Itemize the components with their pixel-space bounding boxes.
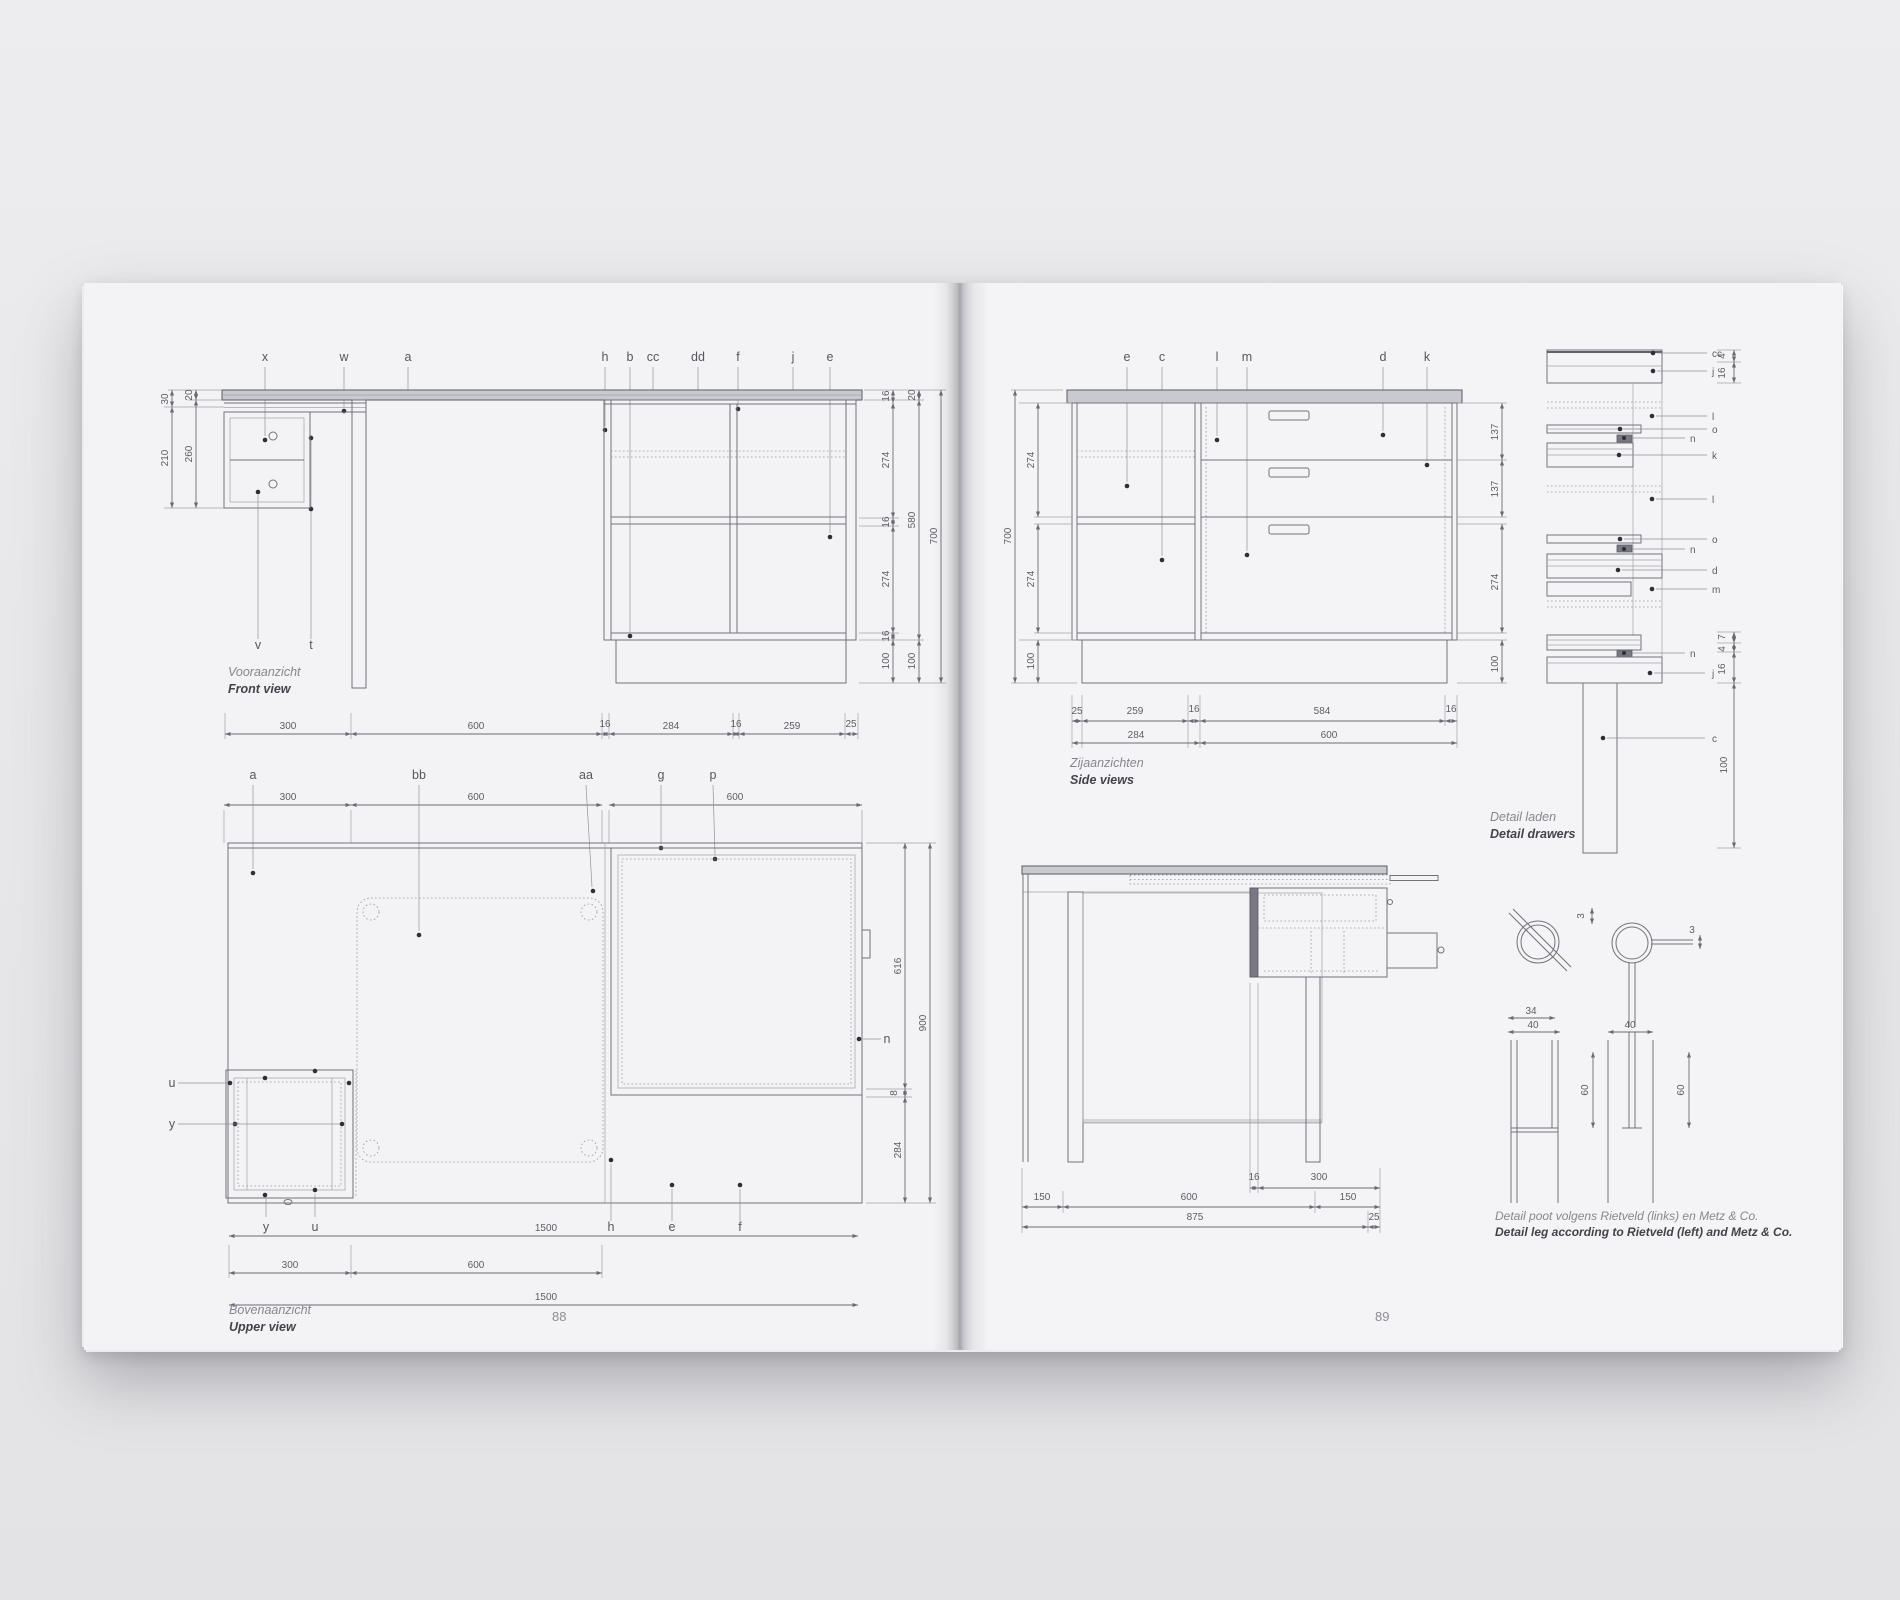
dim-label: 210 <box>160 449 171 466</box>
dim-label: 300 <box>282 1260 299 1271</box>
part-label: x <box>262 350 269 364</box>
leg-detail-caption: Detail poot volgens Rietveld (links) en … <box>1495 1208 1792 1240</box>
part-label: u <box>312 1220 319 1234</box>
dim-label: 300 <box>1311 1172 1328 1183</box>
part-label: f <box>738 1220 742 1234</box>
dim-label: 100 <box>1490 655 1501 672</box>
part-label: n <box>1690 434 1696 445</box>
dim-label: 300 <box>280 721 297 732</box>
dim-label: 20 <box>184 389 195 401</box>
detail-drawers-caption: Detail laden Detail drawers <box>1490 809 1575 843</box>
part-label: g <box>658 768 665 782</box>
part-label: o <box>1712 535 1718 546</box>
dim-label: 600 <box>1181 1192 1198 1203</box>
part-label: l <box>1712 412 1714 423</box>
part-label: f <box>736 350 740 364</box>
dim-label: 40 <box>1624 1020 1636 1031</box>
part-label: j <box>1711 669 1714 680</box>
dim-label: 137 <box>1490 423 1501 440</box>
side-views-caption: Zijaanzichten Side views <box>1070 755 1144 789</box>
dim-label: 600 <box>1321 730 1338 741</box>
dim-label: 284 <box>1128 730 1145 741</box>
part-label: k <box>1424 350 1431 364</box>
dim-label: 25 <box>845 719 857 730</box>
dim-label: 3 <box>1576 913 1587 919</box>
dim-label: 30 <box>160 393 171 405</box>
part-label: e <box>669 1220 676 1234</box>
dim-label: 600 <box>468 792 485 803</box>
dim-label: 150 <box>1034 1192 1051 1203</box>
page-number-left: 88 <box>552 1309 566 1324</box>
dim-label: 274 <box>881 570 892 587</box>
desk-side-view-drawing: 16 300 150 600 150 875 25 <box>1022 866 1444 1233</box>
part-label: a <box>250 768 257 782</box>
dim-label: 584 <box>1314 706 1331 717</box>
dim-label: 100 <box>1719 756 1730 773</box>
part-label: d <box>1712 566 1718 577</box>
book-spread: x w a h b cc dd f j e v t <box>84 283 1841 1350</box>
dim-label: 3 <box>1689 925 1695 936</box>
dim-label: 100 <box>1026 652 1037 669</box>
dim-label: 4 <box>1717 353 1728 359</box>
dim-label: 60 <box>1676 1084 1687 1096</box>
caption-en: Detail leg according to Rietveld (left) … <box>1495 1225 1792 1239</box>
dim-label: 16 <box>730 719 742 730</box>
caption-nl: Zijaanzichten <box>1070 755 1144 772</box>
book-gutter <box>946 283 974 1350</box>
dim-label: 7 <box>1717 634 1728 640</box>
dim-label: 16 <box>1717 367 1728 379</box>
dim-label: 260 <box>184 445 195 462</box>
dim-label: 40 <box>1527 1020 1539 1031</box>
detail-drawers-drawing: cc j l o n k l o n d m n j c 4 16 <box>1547 349 1741 853</box>
part-label: t <box>309 638 313 652</box>
upper-view-caption: Bovenaanzicht Upper view <box>229 1302 311 1336</box>
caption-en: Detail drawers <box>1490 827 1575 841</box>
dim-label: 600 <box>727 792 744 803</box>
part-label: h <box>602 350 609 364</box>
dim-label: 900 <box>918 1014 929 1031</box>
dim-label: 8 <box>889 1090 900 1096</box>
caption-en: Upper view <box>229 1320 296 1334</box>
front-view-caption: Vooraanzicht Front view <box>228 664 301 698</box>
dim-label: 16 <box>599 719 611 730</box>
dim-label: 16 <box>1188 704 1200 715</box>
part-label: c <box>1159 350 1165 364</box>
dim-label: 600 <box>468 1260 485 1271</box>
leg-detail-drawing: 3 3 34 40 60 40 <box>1508 908 1700 1203</box>
part-label: m <box>1242 350 1252 364</box>
part-label: aa <box>579 768 593 782</box>
dim-label: 137 <box>1490 480 1501 497</box>
part-label: p <box>710 768 717 782</box>
dim-label: 100 <box>881 652 892 669</box>
dim-label: 16 <box>881 630 892 642</box>
part-label: a <box>405 350 412 364</box>
dim-label: 25 <box>1368 1212 1380 1223</box>
part-label: n <box>1690 545 1696 556</box>
part-label: dd <box>691 350 705 364</box>
dim-label: 100 <box>907 652 918 669</box>
page-right: e c l m d k <box>959 283 1841 1350</box>
dim-label: 34 <box>1525 1006 1537 1017</box>
part-label: e <box>827 350 834 364</box>
part-label: k <box>1712 451 1718 462</box>
dim-label: 274 <box>1026 451 1037 468</box>
side-views-drawing: e c l m d k <box>1003 350 1507 748</box>
part-label: y <box>169 1117 176 1131</box>
dim-label: 300 <box>280 792 297 803</box>
part-label: j <box>791 350 795 364</box>
dim-label: 875 <box>1187 1212 1204 1223</box>
dim-label: 284 <box>893 1141 904 1158</box>
photo-background: x w a h b cc dd f j e v t <box>0 0 1900 1600</box>
caption-en: Side views <box>1070 773 1134 787</box>
page-number-right: 89 <box>1375 1309 1389 1324</box>
part-label: bb <box>412 768 426 782</box>
part-label: m <box>1712 585 1720 596</box>
part-label: l <box>1216 350 1219 364</box>
dim-label: 1500 <box>535 1292 558 1303</box>
part-label: u <box>169 1076 176 1090</box>
dim-label: 274 <box>1490 573 1501 590</box>
dim-label: 16 <box>1717 663 1728 675</box>
dim-label: 616 <box>893 957 904 974</box>
part-label: n <box>1690 649 1696 660</box>
dim-label: 274 <box>1026 570 1037 587</box>
part-label: h <box>608 1220 615 1234</box>
part-label: o <box>1712 425 1718 436</box>
dim-label: 16 <box>1248 1172 1260 1183</box>
part-label: j <box>1711 367 1714 378</box>
caption-nl: Detail poot volgens Rietveld (links) en … <box>1495 1208 1792 1224</box>
part-label: l <box>1712 495 1714 506</box>
dim-label: 16 <box>881 516 892 528</box>
dim-label: 20 <box>907 389 918 401</box>
part-label: b <box>627 350 634 364</box>
dim-label: 259 <box>784 721 801 732</box>
dim-label: 700 <box>929 527 940 544</box>
dim-label: 25 <box>1071 706 1083 717</box>
dim-label: 259 <box>1127 706 1144 717</box>
part-label: cc <box>647 350 660 364</box>
caption-nl: Vooraanzicht <box>228 664 301 681</box>
part-label: e <box>1124 350 1131 364</box>
part-label: c <box>1712 734 1717 745</box>
part-label: w <box>338 350 349 364</box>
part-label: y <box>263 1220 270 1234</box>
dim-label: 700 <box>1003 527 1014 544</box>
caption-nl: Detail laden <box>1490 809 1575 826</box>
dim-label: 274 <box>881 451 892 468</box>
upper-view-drawing: a bb aa g p u y y u h e f n 300 <box>169 768 936 1305</box>
part-label: v <box>255 638 262 652</box>
left-page-drawings: x w a h b cc dd f j e v t <box>84 283 959 1350</box>
dim-label: 16 <box>881 390 892 402</box>
page-left: x w a h b cc dd f j e v t <box>84 283 959 1350</box>
caption-nl: Bovenaanzicht <box>229 1302 311 1319</box>
dim-label: 580 <box>907 511 918 528</box>
caption-en: Front view <box>228 682 291 696</box>
dim-label: 600 <box>468 721 485 732</box>
part-label: n <box>884 1032 891 1046</box>
dim-label: 284 <box>663 721 680 732</box>
dim-label: 16 <box>1445 704 1457 715</box>
dim-label: 1500 <box>535 1223 558 1234</box>
dim-label: 60 <box>1580 1084 1591 1096</box>
right-page-drawings: e c l m d k <box>959 283 1841 1350</box>
dim-label: 4 <box>1717 646 1728 652</box>
part-label: d <box>1380 350 1387 364</box>
dim-label: 150 <box>1340 1192 1357 1203</box>
